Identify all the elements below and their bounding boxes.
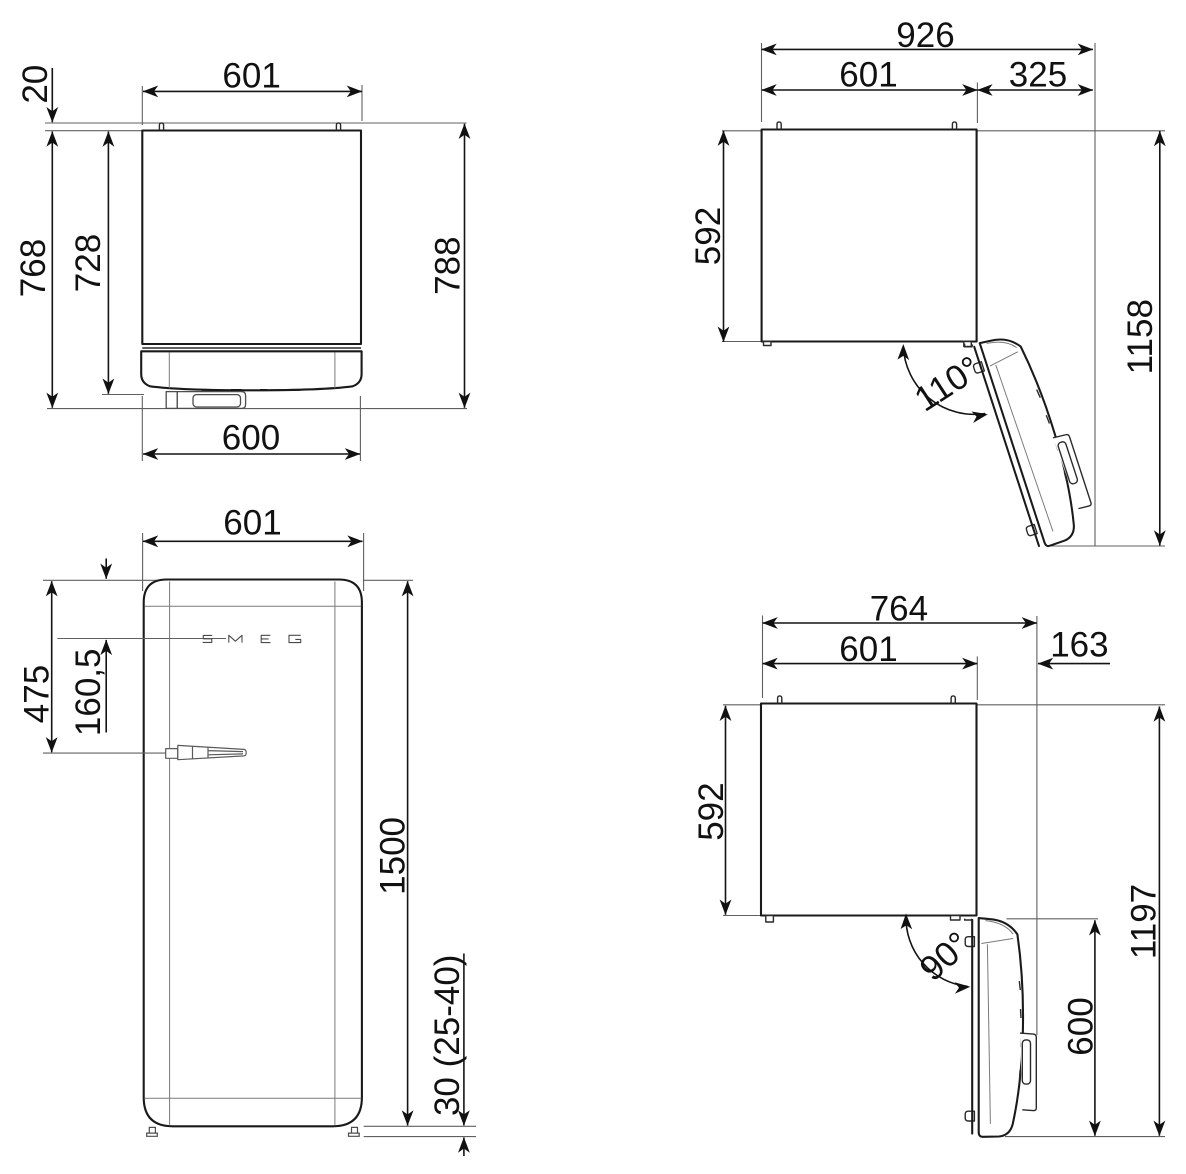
svg-text:601: 601 xyxy=(839,630,897,669)
svg-text:325: 325 xyxy=(1009,55,1067,94)
svg-text:160,5: 160,5 xyxy=(69,649,108,737)
svg-text:30 (25-40): 30 (25-40) xyxy=(428,955,467,1116)
svg-text:600: 600 xyxy=(222,419,280,458)
svg-text:1197: 1197 xyxy=(1125,884,1164,959)
svg-text:601: 601 xyxy=(222,57,280,96)
svg-text:601: 601 xyxy=(839,55,897,94)
svg-text:20: 20 xyxy=(16,65,55,104)
svg-text:600: 600 xyxy=(1061,997,1100,1055)
svg-text:1500: 1500 xyxy=(374,817,413,895)
svg-text:728: 728 xyxy=(69,234,108,292)
svg-text:475: 475 xyxy=(18,665,57,723)
svg-text:926: 926 xyxy=(896,16,954,55)
svg-text:768: 768 xyxy=(14,239,53,297)
svg-text:592: 592 xyxy=(689,207,728,265)
svg-text:601: 601 xyxy=(223,503,281,542)
svg-text:163: 163 xyxy=(1050,626,1108,665)
svg-text:764: 764 xyxy=(870,589,928,628)
svg-text:1158: 1158 xyxy=(1121,299,1160,374)
svg-text:788: 788 xyxy=(429,236,468,294)
svg-text:592: 592 xyxy=(692,782,731,840)
